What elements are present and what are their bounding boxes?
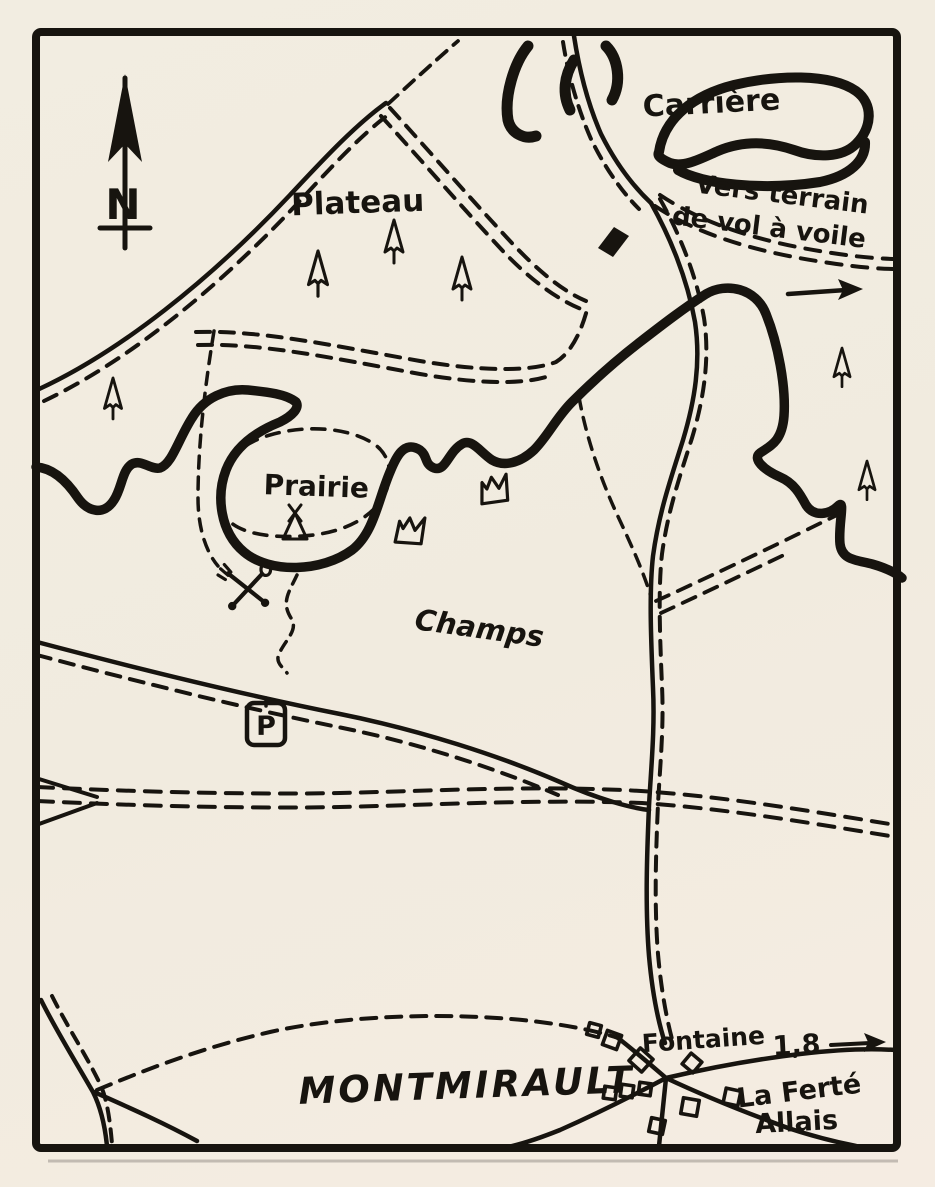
label-prairie: Prairie [263, 468, 369, 505]
spring-icon [478, 474, 509, 504]
label-carriere: Carrière [642, 82, 781, 124]
road-parking-dashed [37, 655, 558, 795]
tree-icon [385, 220, 403, 263]
tree-icon [834, 348, 850, 387]
plateau-boundary-bottom-1 [196, 306, 588, 369]
track-diagonal-1 [656, 515, 837, 601]
label-ferte-line2: Allais [754, 1105, 838, 1140]
path-woods-left [198, 331, 218, 566]
path-escarpment-to-road [579, 397, 651, 597]
stream-wiggle [278, 575, 297, 673]
parking-letter: P [256, 711, 276, 742]
quarry-cliff-3 [606, 46, 618, 100]
road-fork-left-2 [39, 803, 97, 824]
label-plateau: Plateau [291, 183, 425, 224]
building-black [598, 227, 629, 257]
village-building [681, 1098, 700, 1117]
cutlery-icon [217, 561, 273, 611]
plateau-boundary-bottom-2 [198, 345, 552, 382]
village-building [602, 1030, 621, 1049]
tree-icon [453, 257, 471, 300]
gliding-field-arrow-icon [788, 279, 863, 300]
tree-icon [859, 461, 875, 500]
label-montmirault: MONTMIRAULT [298, 1058, 636, 1113]
track-diagonal-2 [661, 554, 786, 613]
spring-icon [395, 516, 425, 544]
quarry-cliff-1 [507, 46, 536, 137]
tent-icon [283, 505, 307, 539]
label-champs: Champs [413, 602, 546, 654]
road-bottomleft-solid [41, 1000, 107, 1146]
tree-icon [104, 378, 121, 419]
road-topleft-solid [37, 103, 386, 390]
village-building [649, 1118, 666, 1135]
road-eastwest-1 [37, 787, 896, 825]
scanned-hand-drawn-map: N P Carrière Vers terrain de vol à voile… [0, 0, 935, 1187]
label-distance: 1,8 [772, 1029, 821, 1062]
escarpment-line [36, 288, 902, 578]
path-to-top-border [388, 41, 458, 104]
north-letter: N [105, 180, 140, 229]
tree-icon [309, 251, 328, 296]
